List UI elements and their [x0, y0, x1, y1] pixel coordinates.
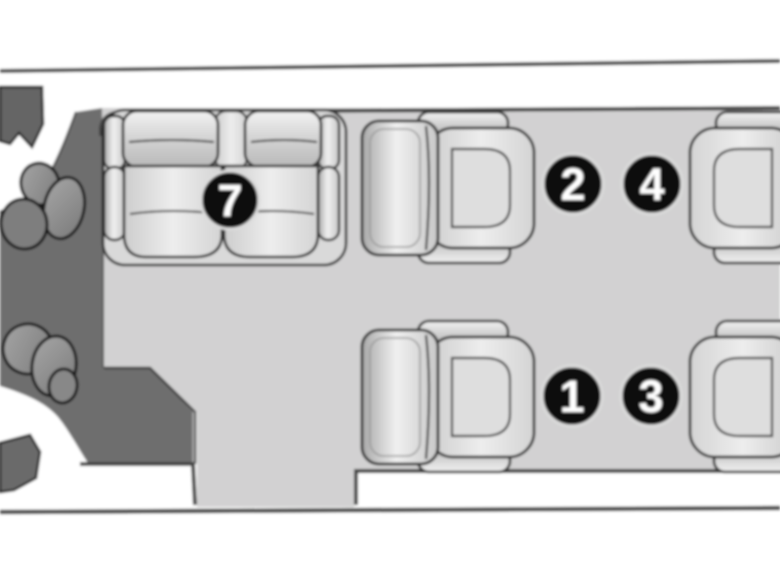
- svg-text:2: 2: [560, 159, 585, 210]
- svg-text:3: 3: [638, 371, 663, 422]
- svg-text:7: 7: [217, 175, 242, 226]
- svg-text:4: 4: [639, 159, 664, 210]
- svg-text:1: 1: [559, 371, 584, 422]
